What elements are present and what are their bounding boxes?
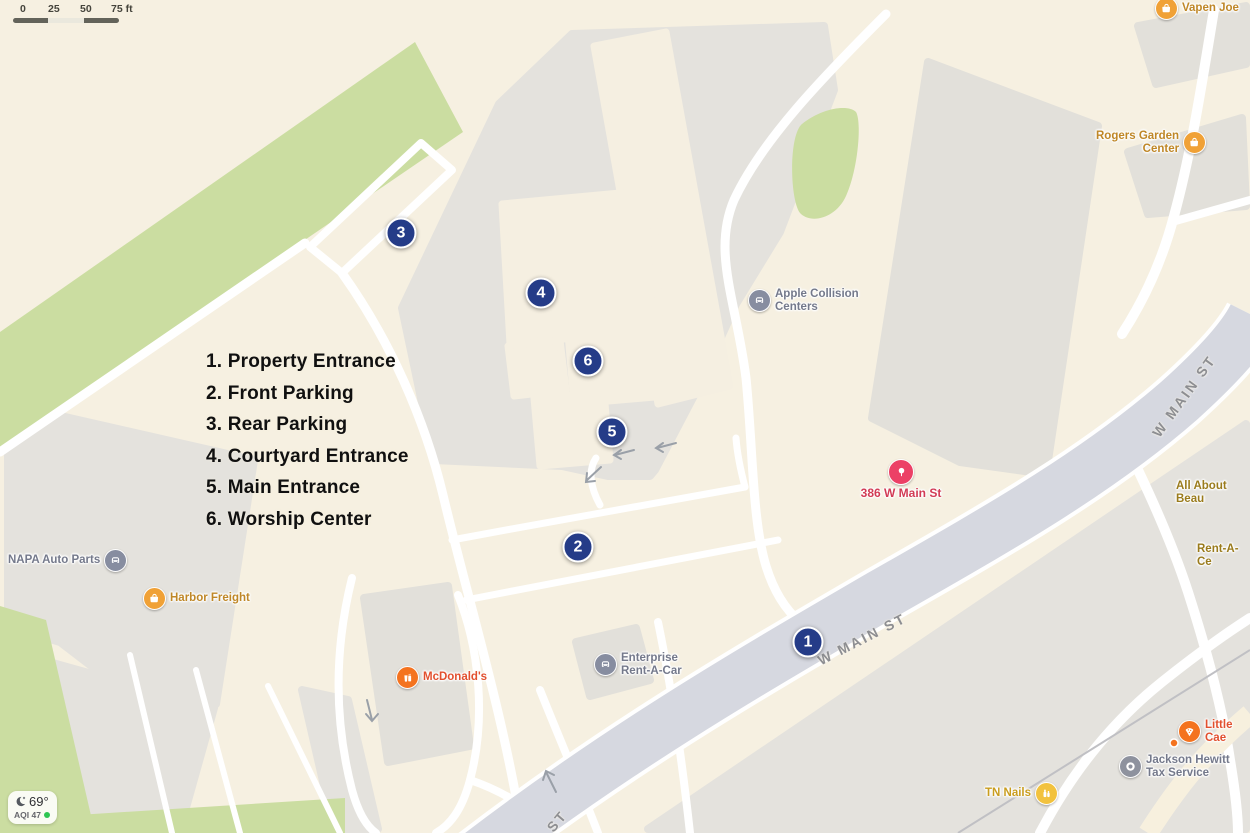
car-icon <box>594 653 617 676</box>
poi-label: Enterprise Rent-A-Car <box>621 652 682 677</box>
poi-label: McDonald's <box>423 671 487 684</box>
poi-all-about-beau[interactable]: All About Beau <box>1176 480 1250 505</box>
scale-tick-75ft: 75 ft <box>111 3 133 15</box>
poi-little-caesars[interactable]: Little Cae <box>1178 719 1250 744</box>
poi-jackson-hewitt-tax-service[interactable]: Jackson Hewitt Tax Service <box>1119 754 1230 779</box>
legend-item: 4. Courtyard Entrance <box>206 441 409 473</box>
poi-label: Jackson Hewitt Tax Service <box>1146 754 1230 779</box>
poi-label: Vapen Joe <box>1182 2 1239 15</box>
pizza-icon <box>1178 720 1201 743</box>
scale-tick-25: 25 <box>48 3 60 15</box>
map-pin-icon <box>888 459 914 485</box>
poi-label: 386 W Main St <box>861 487 942 500</box>
legend-item: 1. Property Entrance <box>206 346 409 378</box>
poi-label: Harbor Freight <box>170 592 250 605</box>
map-canvas[interactable]: W MAIN ST W MAIN ST ST Vapen Joe Rogers … <box>0 0 1250 833</box>
poi-rent-a-center[interactable]: Rent-A-Ce <box>1197 543 1250 568</box>
legend-item: 5. Main Entrance <box>206 472 409 504</box>
weather-widget[interactable]: 69° AQI 47 <box>8 791 57 824</box>
scale-tick-0: 0 <box>20 3 26 15</box>
fast-food-icon <box>396 666 419 689</box>
poi-mcdonalds[interactable]: McDonald's <box>396 666 487 689</box>
marker-3-rear-parking[interactable]: 3 <box>386 218 417 249</box>
poi-label: Rogers Garden Center <box>1096 130 1179 155</box>
marker-5-main-entrance[interactable]: 5 <box>597 417 628 448</box>
poi-enterprise-rent-a-car[interactable]: Enterprise Rent-A-Car <box>594 652 682 677</box>
marker-4-courtyard-entrance[interactable]: 4 <box>526 278 557 309</box>
shopping-bag-icon <box>143 587 166 610</box>
marker-6-worship-center[interactable]: 6 <box>573 346 604 377</box>
poi-tn-nails[interactable]: TN Nails <box>985 782 1058 805</box>
poi-napa-auto-parts[interactable]: NAPA Auto Parts <box>8 549 127 572</box>
shopping-bag-icon <box>1183 131 1206 154</box>
poi-386-w-main-st[interactable]: 386 W Main St <box>857 459 945 500</box>
minor-poi-dot <box>1170 739 1178 747</box>
aqi-status-dot <box>44 812 51 819</box>
poi-label: Rent-A-Ce <box>1197 543 1250 568</box>
scale-tick-50: 50 <box>80 3 92 15</box>
legend-item: 3. Rear Parking <box>206 409 409 441</box>
temperature: 69° <box>29 794 49 809</box>
car-icon <box>104 549 127 572</box>
poi-label: TN Nails <box>985 787 1031 800</box>
scale-bar-rule <box>13 18 119 23</box>
legend-item: 2. Front Parking <box>206 378 409 410</box>
poi-harbor-freight[interactable]: Harbor Freight <box>143 587 250 610</box>
moon-icon <box>14 795 27 808</box>
shopping-bag-icon <box>1155 0 1178 20</box>
poi-label: Apple Collision Centers <box>775 288 859 313</box>
aqi-value: AQI 47 <box>14 810 41 820</box>
nail-polish-icon <box>1035 782 1058 805</box>
scale-bar: 0 25 50 75 ft <box>10 3 140 27</box>
map-legend: 1. Property Entrance 2. Front Parking 3.… <box>206 346 409 535</box>
poi-apple-collision-centers[interactable]: Apple Collision Centers <box>748 288 859 313</box>
poi-label: All About Beau <box>1176 480 1250 505</box>
legend-item: 6. Worship Center <box>206 504 409 536</box>
poi-vapen-joe[interactable]: Vapen Joe <box>1155 0 1239 20</box>
map-geometry <box>0 0 1250 833</box>
poi-label: NAPA Auto Parts <box>8 554 100 567</box>
ring-icon <box>1119 755 1142 778</box>
marker-1-property-entrance[interactable]: 1 <box>793 627 824 658</box>
poi-rogers-garden-center[interactable]: Rogers Garden Center <box>1096 130 1206 155</box>
car-icon <box>748 289 771 312</box>
marker-2-front-parking[interactable]: 2 <box>563 532 594 563</box>
poi-label: Little Cae <box>1205 719 1250 744</box>
